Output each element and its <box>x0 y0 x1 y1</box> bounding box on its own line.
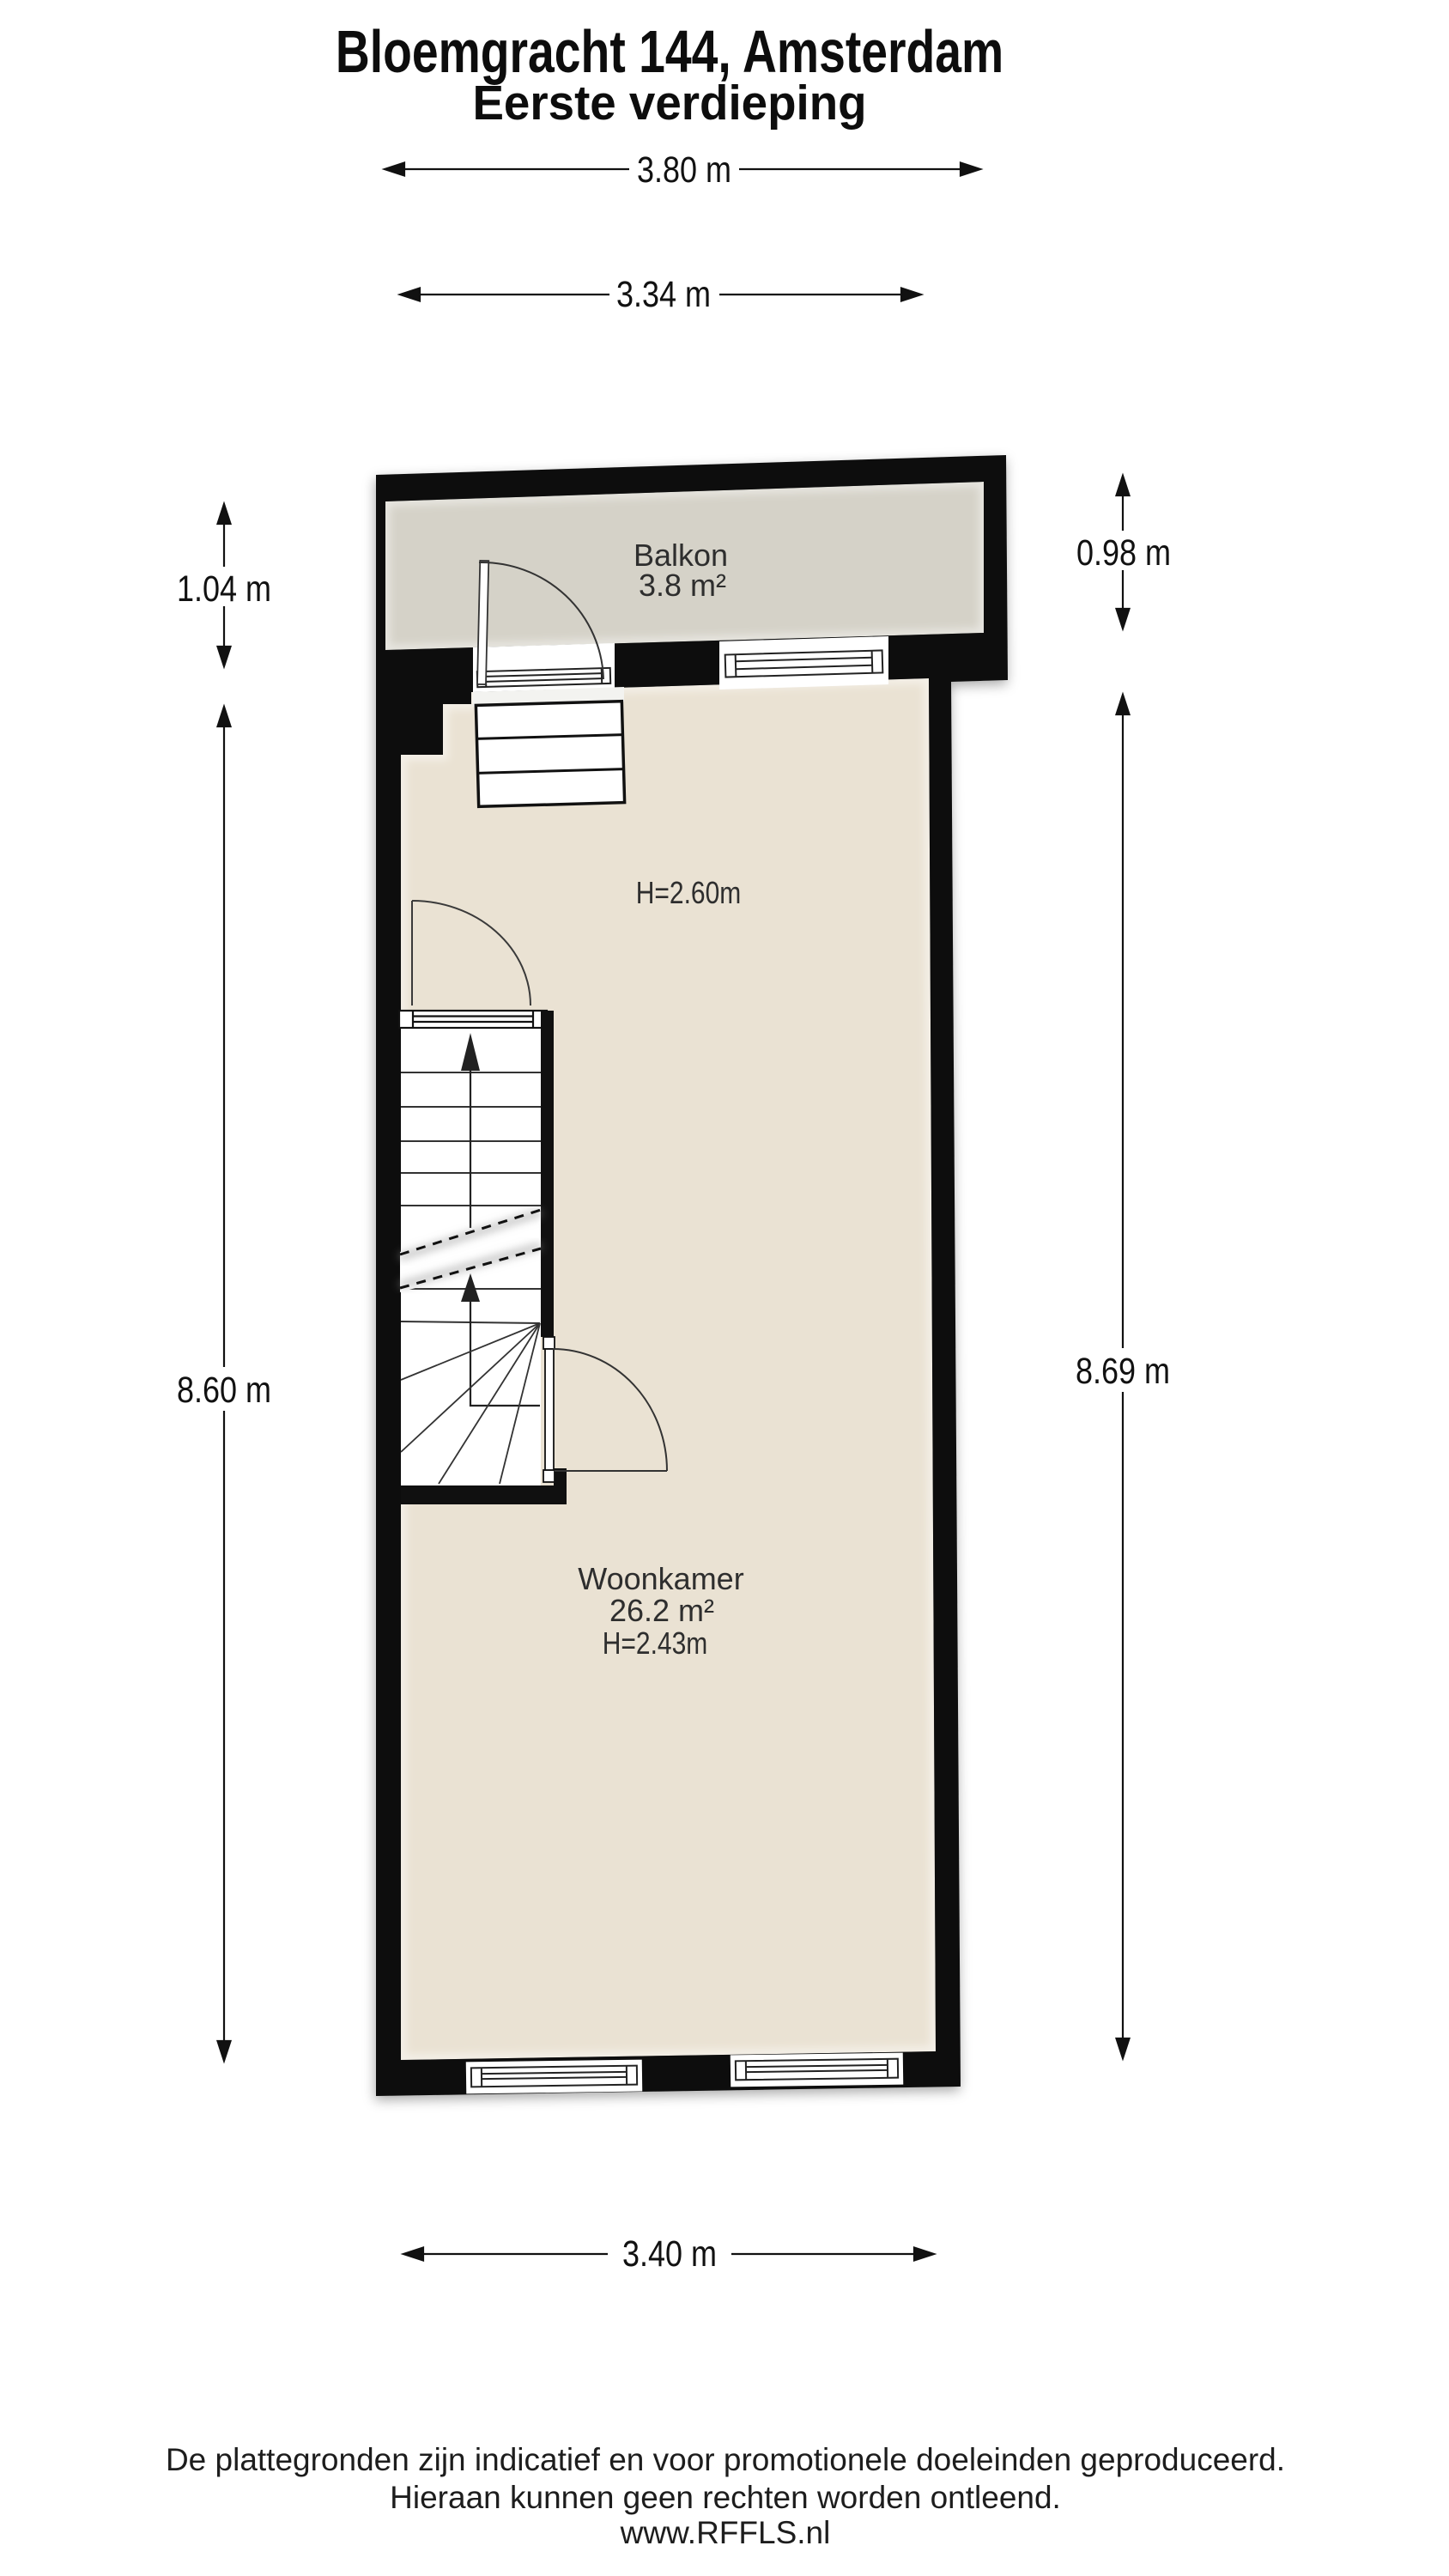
svg-text:H=2.60m: H=2.60m <box>636 876 742 910</box>
svg-text:1.04 m: 1.04 m <box>177 568 271 609</box>
svg-text:H=2.43m: H=2.43m <box>603 1626 708 1661</box>
svg-text:De plattegronden zijn indicati: De plattegronden zijn indicatief en voor… <box>166 2442 1285 2477</box>
svg-text:3.80 m: 3.80 m <box>637 149 731 190</box>
svg-text:www.RFFLS.nl: www.RFFLS.nl <box>620 2515 831 2550</box>
svg-text:0.98 m: 0.98 m <box>1076 532 1171 573</box>
svg-text:Eerste verdieping: Eerste verdieping <box>472 75 866 130</box>
svg-text:8.69 m: 8.69 m <box>1076 1351 1170 1391</box>
svg-text:3.40 m: 3.40 m <box>622 2233 717 2274</box>
svg-text:26.2 m²: 26.2 m² <box>609 1593 714 1628</box>
svg-text:8.60 m: 8.60 m <box>177 1370 271 1410</box>
svg-text:Hieraan kunnen geen rechten wo: Hieraan kunnen geen rechten worden ontle… <box>390 2480 1061 2515</box>
svg-text:Woonkamer: Woonkamer <box>578 1561 743 1596</box>
svg-text:3.8 m²: 3.8 m² <box>639 568 726 603</box>
svg-text:3.34 m: 3.34 m <box>616 274 711 314</box>
